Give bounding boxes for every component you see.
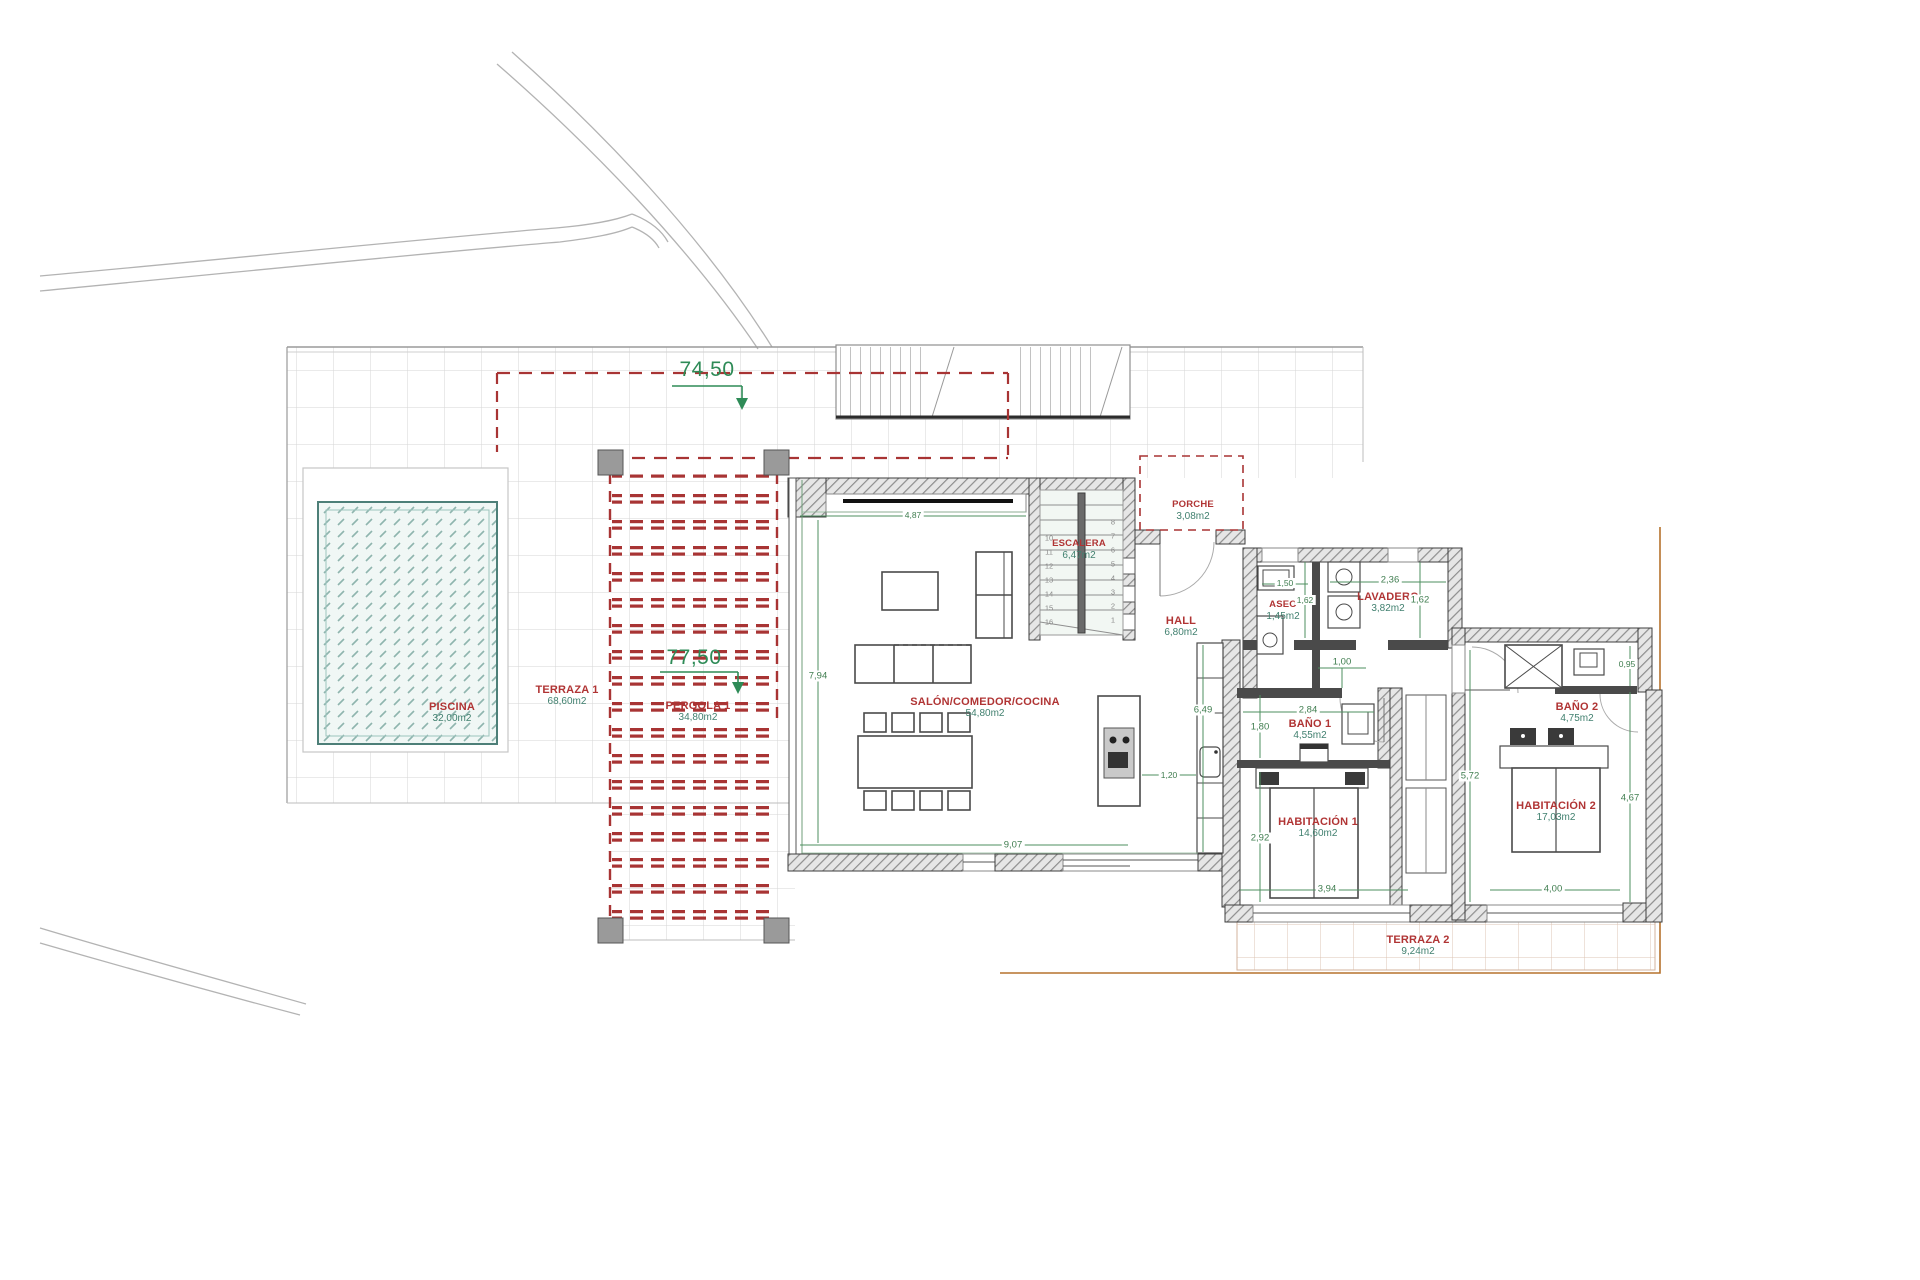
dining-table [858,736,972,788]
stair-step-number: 11 [1045,548,1053,557]
room-area: 9,24m2 [1386,946,1449,958]
room-area: 34,80m2 [666,712,731,724]
room-name: HABITACIÓN 2 [1516,800,1596,812]
room-area: 6,47m2 [1052,550,1106,562]
room-label-hall: HALL 6,80m2 [1164,615,1197,639]
dim-kitchen-height: 6,49 [1192,705,1215,716]
dim-hab1-depth: 2,92 [1249,833,1272,844]
room-area: 6,80m2 [1164,627,1197,639]
stair-step-number: 10 [1045,534,1053,543]
room-name: PORCHE [1172,499,1214,510]
room-label-bano2: BAÑO 2 4,75m2 [1556,701,1599,725]
plan-linework [0,0,1920,1280]
room-area: 17,03m2 [1516,812,1596,824]
room-area: 3,08m2 [1172,511,1214,523]
room-label-bano1: BAÑO 1 4,55m2 [1289,718,1332,742]
dim-aseo-width: 1,50 [1275,578,1296,588]
dim-hab2-right: 4,67 [1619,793,1642,804]
room-name: SALÓN/COMEDOR/COCINA [910,696,1059,708]
stair-step-number: 2 [1111,602,1115,611]
room-area: 68,60m2 [535,696,598,708]
stair-step-number: 3 [1111,588,1115,597]
dim-bano2-niche: 0,95 [1617,659,1638,669]
stair-step-number: 4 [1111,574,1115,583]
room-area: 54,80m2 [910,708,1059,720]
level-value-77-50: 77,50 [666,646,721,670]
stair-step-number: 14 [1045,590,1053,599]
stair-step-number: 13 [1045,576,1053,585]
coffee-table [882,572,938,610]
room-label-piscina: PISCINA 32,00m2 [429,701,475,725]
room-label-habitacion1: HABITACIÓN 1 14,60m2 [1278,816,1358,840]
stair-step-number: 15 [1045,604,1053,613]
pool [303,468,508,752]
room-name: TERRAZA 2 [1386,934,1449,946]
sofa-horizontal [855,645,971,683]
room-name: TERRAZA 1 [535,684,598,696]
room-name: BAÑO 1 [1289,718,1332,730]
room-area: 4,55m2 [1289,730,1332,742]
room-label-habitacion2: HABITACIÓN 2 17,03m2 [1516,800,1596,824]
room-name: ESCALERA [1052,538,1106,549]
room-label-pergola1: PERGOLA 1 34,80m2 [666,700,731,724]
room-name: PERGOLA 1 [666,700,731,712]
dim-hall-pass: 1,00 [1331,657,1354,668]
dim-salon-left: 7,94 [807,671,830,682]
dim-lavadero-width: 2,36 [1379,575,1402,586]
room-name: ASEO [1269,599,1297,610]
dim-aseo-depth: 1,62 [1295,595,1316,605]
room-name: PISCINA [429,701,475,713]
stair-step-number: 6 [1111,546,1115,555]
stair-step-number: 12 [1045,562,1053,571]
stair-step-number: 5 [1111,560,1115,569]
room-name: HABITACIÓN 1 [1278,816,1358,828]
entry-steps [836,345,1130,419]
room-area: 1,45m2 [1266,611,1299,623]
room-name: HALL [1166,615,1196,627]
room-label-salon: SALÓN/COMEDOR/COCINA 54,80m2 [910,696,1059,720]
dim-hab1-width: 3,94 [1316,884,1339,895]
stair-step-number: 1 [1111,616,1115,625]
room-label-terraza1: TERRAZA 1 68,60m2 [535,684,598,708]
room-label-porche: PORCHE 3,08m2 [1172,499,1214,523]
dim-salon-top: 4,87 [903,510,924,520]
dim-hab2-width: 4,00 [1542,884,1565,895]
room-area: 14,60m2 [1278,828,1358,840]
stair-step-number: 8 [1111,518,1115,527]
room-area: 32,00m2 [429,713,475,725]
dim-bano1-width: 2,84 [1297,705,1320,716]
floor-plan-canvas: 74,50 77,50 PISCINA 32,00m2 TERRAZA 1 68… [0,0,1920,1280]
room-label-escalera: ESCALERA 6,47m2 [1052,538,1106,562]
dim-salon-bottom: 9,07 [1002,840,1025,851]
stair-step-number: 7 [1111,532,1115,541]
dim-hab2-left: 5,72 [1459,771,1482,782]
hab2-headboard [1500,746,1608,768]
dim-lavadero-depth: 1,62 [1409,595,1432,606]
level-value-74-50: 74,50 [679,358,734,382]
room-name: BAÑO 2 [1556,701,1599,713]
dim-island-gap: 1,20 [1159,770,1180,780]
stair-step-number: 16 [1045,618,1053,627]
dim-bano1-depth: 1,80 [1249,722,1272,733]
room-label-terraza2: TERRAZA 2 9,24m2 [1386,934,1449,958]
room-area: 4,75m2 [1556,713,1599,725]
